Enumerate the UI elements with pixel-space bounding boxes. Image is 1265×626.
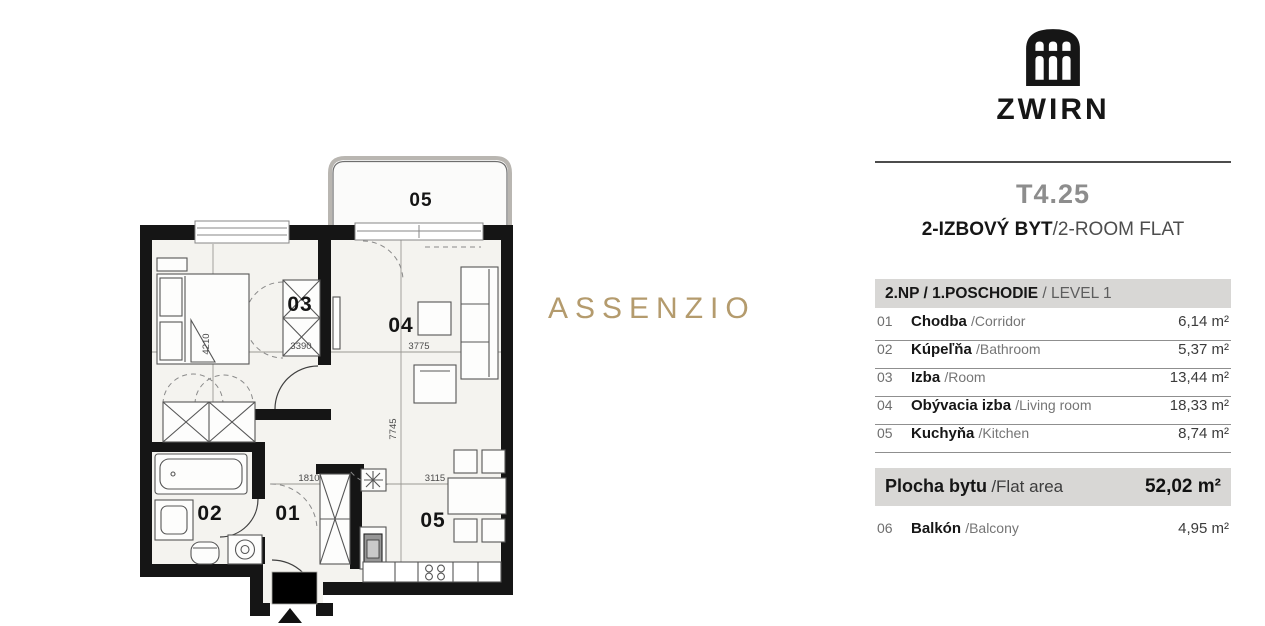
room-label-01: 01 [275,502,300,525]
room-name-en: /Kitchen [979,425,1030,441]
room-name-en: /Bathroom [976,341,1041,357]
flat-area-bar: Plocha bytu /Flat area 52,02 m² [875,468,1231,506]
balcony-label: 05 [409,190,432,211]
sofa [461,267,498,379]
dim-kitchen-width: 3115 [425,473,445,484]
dim-room04-width: 3775 [408,341,429,352]
level-en: / LEVEL 1 [1042,285,1111,302]
room-label-05: 05 [420,509,445,532]
window-room03 [195,221,289,243]
room-name-sk: Balkón [911,520,961,537]
room-name-en: /Living room [1015,397,1091,413]
level-header: 2.NP / 1.POSCHODIE / LEVEL 1 [875,279,1231,308]
level-sk: 2.NP / 1.POSCHODIE [885,285,1038,302]
tv-board [333,297,340,349]
balcony-door-window [355,223,483,240]
room-table: 01 Chodba /Corridor 6,14 m² 02 Kúpeľňa /… [875,313,1231,453]
room-name-sk: Izba [911,369,940,386]
divider-line [875,161,1231,163]
table-row: 02 Kúpeľňa /Bathroom 5,37 m² [875,341,1231,369]
room-number: 03 [877,369,911,385]
bathtub [155,454,247,494]
floor-plan: 03 04 01 02 05 05 3390 4210 3775 7745 18… [133,152,538,626]
room-name-en: /Balcony [965,520,1019,536]
watermark: ASSENZIO [548,292,748,326]
room-name-sk: Obývacia izba [911,397,1011,414]
room-area: 6,14 m² [1178,313,1229,330]
arched-building-icon [1021,26,1085,86]
table-row: 01 Chodba /Corridor 6,14 m² [875,313,1231,341]
room-number: 06 [877,520,911,536]
info-panel: ZWIRN T4.25 2-IZBOVÝ BYT/2-ROOM FLAT 2.N… [875,26,1231,546]
table-row: 05 Kuchyňa /Kitchen 8,74 m² [875,425,1231,453]
washing-machine [228,535,262,564]
dim-room04-height: 7745 [388,418,399,439]
room-number: 02 [877,341,911,357]
toilet [191,542,219,564]
washbasin [155,500,193,540]
room-label-04: 04 [388,314,413,337]
flat-area-value: 52,02 m² [1145,476,1221,498]
dining-set [448,450,506,542]
unit-code: T4.25 [875,179,1231,210]
table-row: 03 Izba /Room 13,44 m² [875,369,1231,397]
brand-logo [875,26,1231,91]
corridor-closet [320,474,350,564]
room-name-en: /Corridor [971,313,1025,329]
kitchen-counter [363,562,501,582]
room-number: 05 [877,425,911,441]
room-label-03: 03 [287,293,312,316]
coffee-table [418,302,451,335]
unit-type-en: /2-ROOM FLAT [1053,219,1185,240]
room-number: 04 [877,397,911,413]
wardrobe-low [163,402,255,442]
unit-type: 2-IZBOVÝ BYT/2-ROOM FLAT [875,219,1231,241]
room-area: 8,74 m² [1178,425,1229,442]
room-name-sk: Kúpeľňa [911,341,972,358]
room-area: 18,33 m² [1170,397,1229,414]
room-label-02: 02 [197,502,222,525]
armchair [414,365,456,403]
dim-room03-width: 3390 [290,341,311,352]
floor-plan-drawing: 03 04 01 02 05 05 3390 4210 3775 7745 18… [133,152,538,626]
entrance-mat [272,572,317,604]
unit-type-sk: 2-IZBOVÝ BYT [922,219,1053,240]
brand-name: ZWIRN [875,93,1231,127]
balcony-row: 06 Balkón /Balcony 4,95 m² [875,520,1231,546]
room-name-sk: Chodba [911,313,967,330]
entrance-arrow-icon [278,608,302,623]
room-area: 4,95 m² [1178,520,1229,537]
room-area: 13,44 m² [1170,369,1229,386]
dim-room03-height: 4210 [201,333,212,354]
flat-area-sk: Plocha bytu [885,476,987,496]
dim-corridor-width: 1810 [298,473,319,484]
room-number: 01 [877,313,911,329]
extractor-symbol [361,469,386,491]
table-row: 04 Obývacia izba /Living room 18,33 m² [875,397,1231,425]
room-name-sk: Kuchyňa [911,425,974,442]
flat-area-en: /Flat area [991,477,1063,496]
room-area: 5,37 m² [1178,341,1229,358]
room-name-en: /Room [944,369,985,385]
